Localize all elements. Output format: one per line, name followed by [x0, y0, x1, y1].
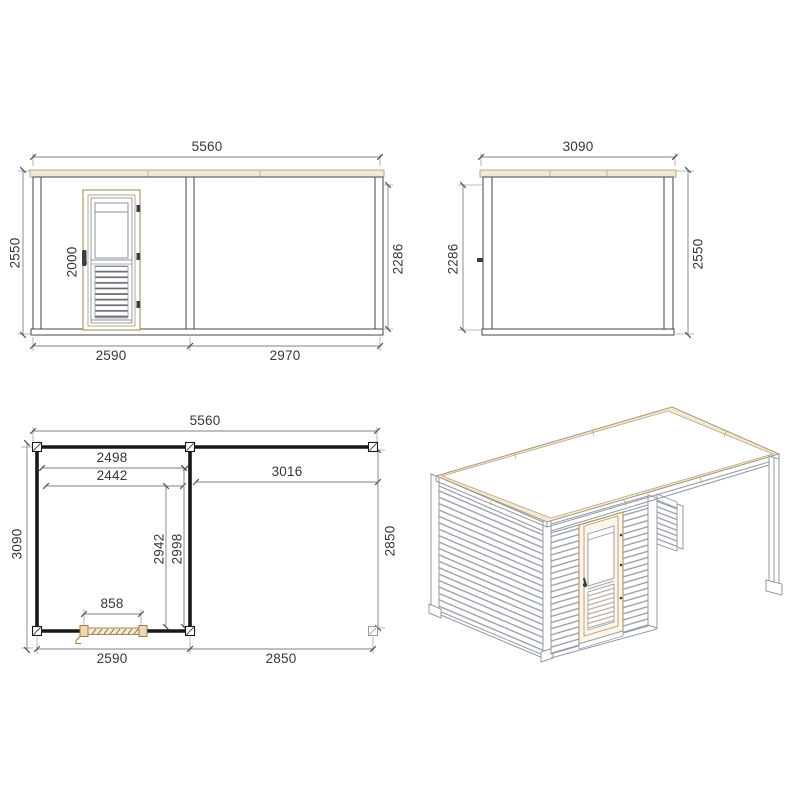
isometric-view — [429, 407, 782, 662]
iso-door — [579, 512, 623, 649]
iso-right-wall-patch — [657, 494, 683, 551]
dim-side-height-right: 2550 — [691, 239, 706, 270]
dim-front-height-right: 2286 — [391, 244, 406, 275]
dim-side-total-width: 3090 — [563, 139, 594, 154]
dim-plan-open-span: 3016 — [272, 464, 303, 479]
side-door-handle-profile — [477, 258, 483, 262]
plan-post-bottom-left — [33, 627, 42, 636]
front-door-hinge-middle — [137, 253, 141, 260]
iso-corner-post — [543, 518, 551, 656]
dim-plan-door-width: 858 — [100, 596, 123, 611]
dim-plan-inner-width-2: 2442 — [97, 468, 128, 483]
dim-front-bottom-right: 2970 — [270, 348, 301, 363]
side-elevation-view: 3090 2286 2550 — [446, 139, 706, 335]
dim-front-door-height: 2000 — [65, 247, 80, 278]
front-post-right — [375, 177, 383, 329]
front-door-hinge-top — [137, 205, 141, 212]
iso-door-window — [588, 526, 614, 586]
dim-plan-depth-left: 3090 — [10, 529, 25, 560]
dim-side-height-left: 2286 — [446, 244, 461, 275]
dim-front-height-left: 2550 — [8, 238, 23, 269]
iso-left-corner-board — [431, 474, 439, 609]
iso-door-slats — [588, 584, 614, 630]
side-post-right — [664, 177, 673, 329]
dim-plan-inner-width-1: 2498 — [97, 450, 128, 465]
dim-front-bottom-left: 2590 — [96, 348, 127, 363]
plan-post-bottom-middle — [186, 627, 195, 636]
dim-plan-inner-depth-1: 2942 — [152, 534, 167, 565]
side-wall-cladding — [492, 177, 664, 329]
iso-front-corner-board — [648, 495, 657, 628]
dim-front-total-width: 5560 — [192, 139, 223, 154]
side-post-left — [483, 177, 492, 329]
dim-plan-bottom-left: 2590 — [97, 651, 128, 666]
side-base-strip — [482, 329, 674, 335]
dim-plan-bottom-right: 2850 — [266, 651, 297, 666]
plan-post-top-left — [33, 443, 42, 452]
dim-plan-inner-depth-2: 2998 — [170, 534, 185, 565]
front-roof-fascia — [30, 170, 384, 177]
plan-dimensions: 5560 2498 2442 3016 2942 2998 3090 2850 … — [10, 413, 398, 666]
front-door-window — [95, 203, 128, 258]
side-roof-fascia — [480, 170, 676, 177]
plan-post-bottom-right — [369, 627, 378, 636]
iso-pergola-post-foot — [766, 580, 782, 595]
front-post-middle — [186, 177, 194, 329]
front-door-knob — [82, 261, 87, 266]
plan-post-top-middle — [186, 443, 195, 452]
front-elevation-view: 5560 2550 2286 2000 2590 2970 — [8, 139, 406, 363]
front-door-slats — [95, 266, 128, 318]
floor-plan-view: 5560 2498 2442 3016 2942 2998 3090 2850 … — [10, 413, 398, 666]
front-wall-right-cladding — [194, 177, 375, 329]
front-door-hinge-bottom — [137, 301, 141, 308]
technical-drawing-sheet: 5560 2550 2286 2000 2590 2970 — [0, 0, 794, 794]
front-post-left — [33, 177, 41, 329]
iso-pergola-post — [766, 456, 782, 595]
dim-plan-depth-right: 2850 — [383, 526, 398, 557]
front-door — [82, 190, 140, 330]
plan-post-top-right — [369, 443, 378, 452]
plan-door-symbol — [76, 626, 147, 644]
dim-plan-total-width: 5560 — [190, 413, 221, 428]
plan-corner-posts — [33, 443, 378, 636]
